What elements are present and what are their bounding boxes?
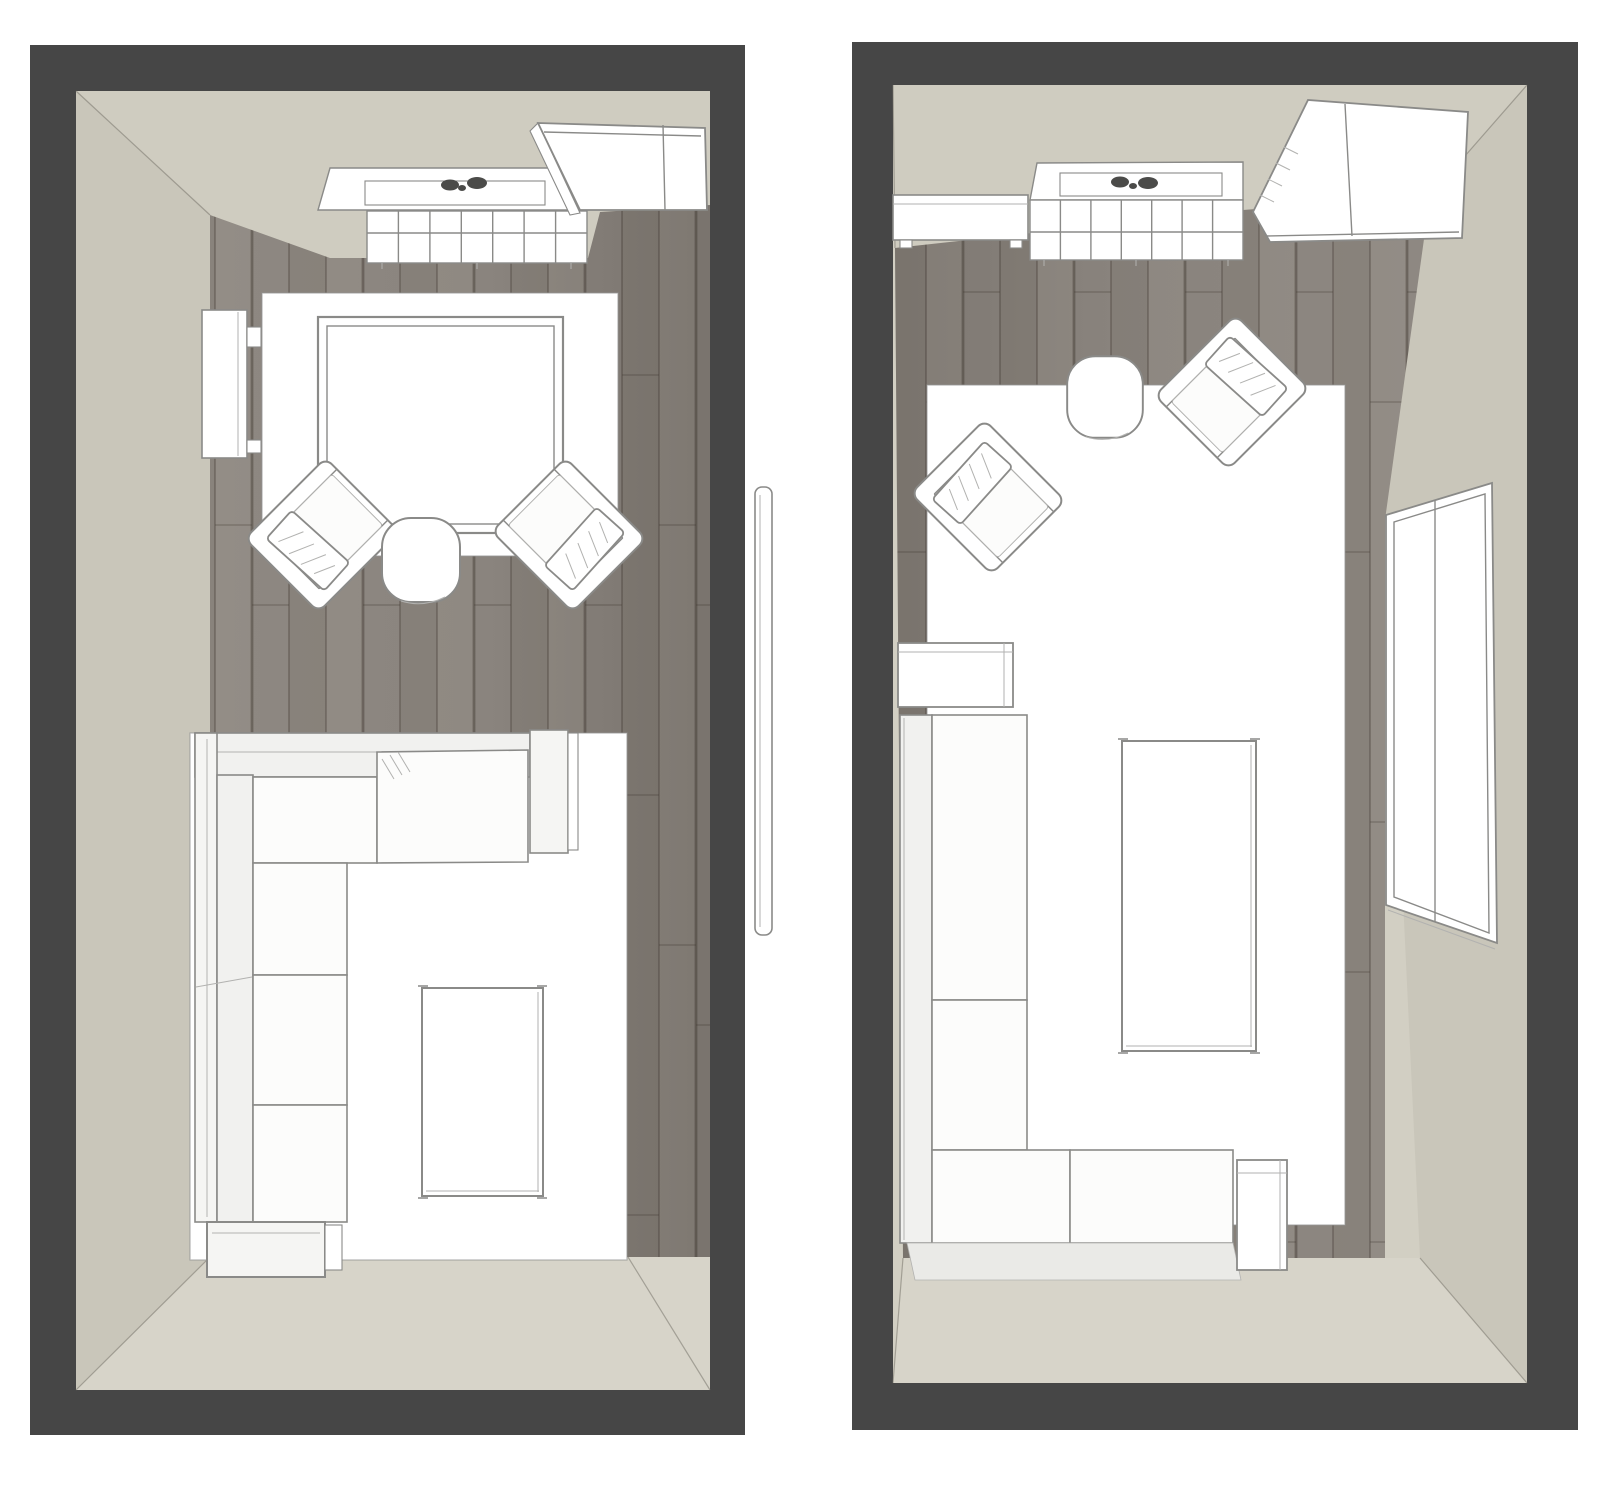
window-sill [318, 168, 575, 210]
tall-window-icon [1386, 483, 1497, 949]
floor-plan-comparison [0, 0, 1620, 1486]
round-side-table [1067, 356, 1143, 439]
sideboard-icon [893, 195, 1028, 248]
window-sill [1030, 162, 1243, 200]
coffee-table [418, 986, 547, 1198]
room-left [30, 45, 745, 1435]
radiator [367, 211, 587, 269]
cube-side-table [1237, 1160, 1287, 1270]
radiator [1030, 200, 1243, 266]
coffee-table [1118, 739, 1260, 1053]
round-side-table [382, 518, 460, 604]
side-cabinet [898, 643, 1013, 707]
door-panel [753, 485, 775, 937]
room-right [852, 42, 1578, 1430]
